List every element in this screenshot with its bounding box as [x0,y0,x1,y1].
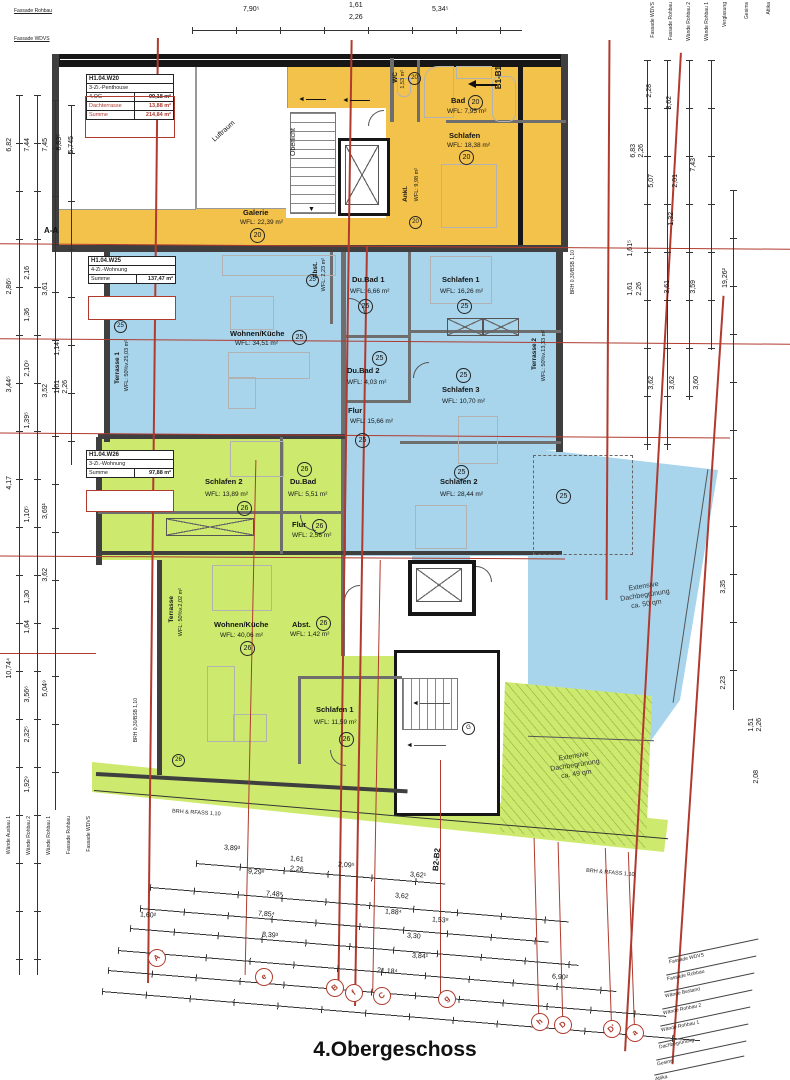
dim-label: 5,04⁹ [42,680,49,697]
wardrobe-x-green [166,518,254,536]
stairs-top-arrow-icon: ▼ [308,206,315,213]
wardrobe-x-blue-2 [483,318,519,336]
unit-number-circle: 25 [454,465,469,480]
red-axis-v11 [558,842,564,1027]
dim-label: 2,26 [349,14,363,21]
stairs-exit-arrow-icon: ◄ [406,742,413,749]
furniture-bed-blue-s2 [415,505,467,549]
dim-label: 6,83 [630,144,637,158]
red-axis-v9 [440,760,441,998]
unit-number-circle: 26 [172,754,185,767]
room-area: WFL: 34,51 m² [235,340,278,347]
dim-label: 3,62¹ [410,871,426,879]
dim-label: 2,26 [638,144,645,158]
room-name: Flur [348,406,362,415]
dim-label: 3,62 [395,892,409,900]
dim-label: 1,61 [54,380,61,394]
dim-label: 2,86⁵ [6,278,13,295]
room-name: Abst. [292,620,311,629]
wall-green-s1-top [298,676,402,679]
room-area: WFL: 10,70 m² [442,398,485,405]
dim-label: 3,44⁵ [6,376,13,393]
roof-notch-dashed [533,455,633,555]
furniture-table-blue [230,296,274,330]
dim-label: 2,08 [753,770,760,784]
stairs-bottom [402,678,458,730]
unit-number-circle: 25 [114,320,127,333]
room-area: WFL: 16,26 m² [440,288,483,295]
unit-number-circle: 25 [556,489,571,504]
unit-number-circle: 20 [250,228,265,243]
wall-penthouse-terrace [518,62,523,250]
unit-number-circle: 20 [468,95,483,110]
entry-arrow-line [306,99,326,100]
entry-arrow-line [350,100,370,101]
dim-chain-right-3 [686,60,693,400]
dim-label: 1,30 [24,590,31,604]
dim-label: 3,62 [42,568,49,582]
grid-bubble-B: B [322,975,347,1000]
wall-dubad2-bottom [345,400,411,403]
dim-label: 3,62 [669,376,676,390]
dim-label: 1,32 [668,212,675,226]
room-area: WFL: 50%v.25,03 m² [124,340,130,391]
room-name: Bad [451,96,465,105]
legend-label: Attika [766,2,772,15]
entry-arrow-icon: ◄ [298,96,305,103]
unit-number-circle: 25 [306,274,319,287]
grid-bubble-f: f [341,980,366,1005]
unit-box-w26: H1.04.W26 3-Zi.-Wohnung Summe97,88 m² [86,450,174,478]
dim-label: 2,09⁵ [338,861,355,869]
dim-label: 5,07 [648,174,655,188]
furniture-sofa-green-1 [207,666,235,742]
furniture-bed-green-s2 [230,441,284,477]
room-area: WFL: 15,66 m² [350,418,393,425]
dim-label: 7,43 [690,158,697,172]
dim-chain-right-4 [708,60,715,350]
unit-row-value: 137,47 m² [137,275,175,283]
dim-label: 7,45 [42,138,49,152]
dim-label: 3,61 [42,282,49,296]
room-area: WFL: 22,39 m² [240,219,283,226]
legend-label: Fassade WDVS [86,816,92,852]
room-name: Terrasse [168,596,175,623]
furniture-bed-penthouse [441,164,497,228]
annotation-brh-right: BRH 0,30/BSB 1,10 [570,250,576,294]
dim-label: 6,83⁵ [56,134,63,151]
dim-label: 1,61 [290,855,304,863]
dim-label: 2,10⁹ [24,360,31,377]
unit-id: H1.04.W26 [87,451,173,460]
unit-row-label: Summe [89,275,137,283]
dim-label: 3,60 [693,376,700,390]
legend-label: Wände Rohbau 1 [46,816,52,855]
unit-type: 3-Zi.-Penthouse [87,84,173,93]
furniture-sofa-blue-1 [228,352,310,379]
legend-label: Wände Ausbau 1 [6,816,12,854]
legend-label: Verglasung [722,2,728,27]
dim-label: 2,26 [290,865,304,873]
room-name: Du.Bad 2 [347,366,380,375]
annotation-brh-bottom1: BRH & RFASS 1,10 [172,809,221,818]
dim-chain-right-5 [730,190,737,710]
room-name: Du.Bad [290,477,316,486]
room-name: Schlafen [449,131,480,140]
dim-label: 3,59 [690,280,697,294]
floor-plan-drawing: ▼ ◄ ◄ G [0,0,790,1080]
annotation-brh-left: BRH 0,30/BSB 1,10 [133,698,139,742]
elevator-x-mid [416,568,462,602]
dim-label: 10,74⁴ [6,658,13,679]
room-name-oberlicht: Oberlicht [290,128,297,156]
dim-label: 3,61 [664,280,671,294]
page-title: 4.Obergeschoss [0,1038,790,1062]
annotation-brh-bottom2: BRH & RFASS 1,10 [586,868,635,878]
unit-id: H1.04.W20 [87,75,173,84]
wall-blue-right [556,252,563,452]
dim-label: 7,48⁸ [266,890,283,898]
stairwell-bottom [394,650,500,816]
room-name: Galerie [243,208,268,217]
section-b1-line [475,84,497,86]
legend-label: Wände Rohbau 1 [704,2,710,41]
dim-label: 2,26 [62,380,69,394]
dim-chain-top [192,27,522,34]
room-area: WFL: 9,98 m² [414,168,420,201]
dim-label: 1,39⁵ [24,412,31,429]
dim-label: 1,53⁸ [432,916,449,924]
room-name: WC [392,72,399,83]
room-name: Wohnen/Küche [214,620,268,629]
unit-number-circle: 26 [297,462,312,477]
dim-chain-left-3 [52,100,59,810]
wall-green-row-bottom [98,551,562,555]
dim-label: 3,30 [407,932,421,940]
room-name: Schlafen 2 [205,477,243,486]
furniture-shelf-bad [456,66,492,79]
dim-label: 3,62 [648,376,655,390]
unit-id: H1.04.W25 [89,257,175,266]
unit-number-circle: 20 [409,216,422,229]
room-name: Schlafen 3 [442,385,480,394]
room-area: WFL: 4,03 m² [347,379,386,386]
unit-number-circle: 20 [408,72,421,85]
wall-wc-left [390,58,394,122]
corridor-white-left [342,556,412,656]
dim-label: 1,60² [140,911,156,919]
room-area: WFL: 2,56 m² [292,532,331,539]
grid-bubble-D: D [550,1012,575,1037]
dim-label: 2,16 [24,266,31,280]
legend-label: Wände Rohbau 2 [26,816,32,855]
dim-label: 2,23 [720,676,727,690]
room-area: 1,53 m² [400,70,406,89]
dim-chain-bottom-1 [196,860,446,887]
room-name: Schlafen 1 [316,705,354,714]
grid-bubble-g: g [434,986,459,1011]
unit-type: 4-Zi.-Wohnung [89,266,175,275]
wardrobe-x-blue-1 [447,318,483,336]
entry-arrow-icon: ◄ [342,97,349,104]
dim-label: 6,82 [6,138,13,152]
dim-label: 2,26 [756,718,763,732]
legend-label: Gesims [744,2,750,19]
dim-label: 1,36 [24,308,31,322]
dim-label: 2,28 [646,84,653,98]
dim-label: 8,39³ [262,931,278,939]
section-b1-arrow-icon [468,80,476,88]
dim-label: 5,745 [68,136,75,154]
room-area: WFL: 1,42 m² [290,631,329,638]
dim-label: 1,61⁵ [627,240,634,257]
dim-label: 7,85⁴ [258,910,275,918]
wall-green-left-lower [157,560,162,775]
room-area: WFL: 6,66 m² [350,288,389,295]
room-area: WFL: 50%v.2,02 m² [178,588,184,636]
unit-number-circle: 26 [240,641,255,656]
section-marker-b1: B1-B1 [494,66,503,89]
dim-label: 3,35 [720,580,727,594]
wall-top-white-slit [60,59,560,60]
wall-wc-bad [417,60,420,122]
dim-label: 5,34⁵ [432,6,449,13]
dim-label: 1,10⁵ [24,506,31,523]
wall-dubad1-right [408,252,411,402]
unit-row-value: 97,88 m² [135,469,173,477]
unit-number-circle: 25 [292,330,307,345]
room-area: WFL: 18,38 m² [447,142,490,149]
room-area: WFL: 50%v.13,33 m² [541,330,547,381]
room-area: WFL: 40,06 m² [220,632,263,639]
unit-box-w25-redframe [88,296,176,320]
unit-type: 3-Zi.-Wohnung [87,460,173,469]
dim-label: 1,88⁴ [385,908,402,916]
dim-label: 6,90² [552,973,568,981]
legend-label: Fassade Rohbau [14,8,52,14]
dim-label: 1,51 [748,718,755,732]
stairs-run-arrow-icon: ◄ [412,700,419,707]
furniture-sofa-blue-2 [228,377,256,409]
dim-label: 3,62 [666,96,673,110]
dim-label: 1,61 [627,282,634,296]
dim-label: 1,14 [54,342,61,356]
dim-label: 3,69¹ [42,503,49,519]
room-name: Terrasse 1 [114,352,121,384]
dim-label: 19,26² [722,268,729,288]
dim-chain-left-2 [34,95,41,975]
unit-number-circle: 26 [316,616,331,631]
dim-label: 1,61 [349,2,363,9]
dim-label: 3,56⁶ [24,686,31,703]
wall-dubad2-top [345,335,411,338]
dim-label: 3,84¹ [412,952,428,960]
room-area: WFL: 2,23 m² [321,258,327,291]
legend-label: Fassade Rohbau [66,816,72,854]
unit-number-circle: 25 [355,433,370,448]
unit-row-label: Summe [87,469,135,477]
void-luftraum-2 [196,63,288,209]
unit-number-circle: 25 [372,351,387,366]
wall-right-top [561,54,568,252]
room-area: WFL: 28,44 m² [440,491,483,498]
dim-label: 3,89³ [224,844,240,852]
unit-box-w26-redframe [86,490,174,512]
unit-number-circle: 20 [459,150,474,165]
room-area: WFL: 7,95 m² [447,108,486,115]
dim-chain-bottom-2 [150,884,569,925]
legend-label: Fassade WDVS [14,36,50,42]
furniture-bed-blue-s3 [458,416,498,464]
furniture-table-green [212,565,272,611]
wall-green-s1-left [298,676,301,764]
room-area: WFL: 5,51 m² [288,491,327,498]
dim-chain-left-1 [16,95,23,975]
dim-chain-right-1 [644,60,651,450]
unit-number-circle: 25 [358,299,373,314]
dim-chain-right-2 [664,60,671,450]
legend-label: Fassade WDVS [650,2,656,38]
unit-number-circle: 25 [457,299,472,314]
legend-label: Fassade Rohbau [668,2,674,40]
unit-box-w20-redframe [85,96,175,138]
room-area: WFL: 11,59 m² [314,719,357,726]
dim-label: 1,64 [24,620,31,634]
stair-circle-g: G [462,722,475,735]
room-area: WFL: 13,89 m² [205,491,248,498]
dim-label: 9,29⁶ [248,868,265,876]
unit-box-w25: H1.04.W25 4-Zi.-Wohnung Summe137,47 m² [88,256,176,284]
dim-label: 7,90⁵ [243,6,260,13]
unit-number-circle: 25 [456,368,471,383]
room-name: Terrasse 2 [531,338,538,370]
unit-number-circle: 26 [312,519,327,534]
room-name: Schlafen 1 [442,275,480,284]
room-name: Wohnen/Küche [230,329,284,338]
dim-label: 3,52 [42,384,49,398]
red-axis-h5 [0,653,96,654]
stairs-exit-line [414,745,446,746]
unit-number-circle: 26 [237,501,252,516]
legend-label: Wände Rohbau 2 [686,2,692,41]
room-name: Du.Bad 1 [352,275,385,284]
dim-chain-left-4 [68,105,75,465]
dim-label: 2,32⁵ [24,726,31,743]
dim-label: 1,92⁹ [24,776,31,793]
room-name: Ankl. [402,186,409,202]
red-axis-v10 [534,838,540,1023]
dim-label: 7,44 [24,138,31,152]
dim-label: 2,26 [636,282,643,296]
unit-number-circle: 26 [339,732,354,747]
dim-label: 4,17 [6,476,13,490]
room-name: Flur [292,520,306,529]
stairs-run-line [420,703,450,704]
section-marker-aa: A-A [44,226,58,235]
dim-label: 2,01 [672,174,679,188]
